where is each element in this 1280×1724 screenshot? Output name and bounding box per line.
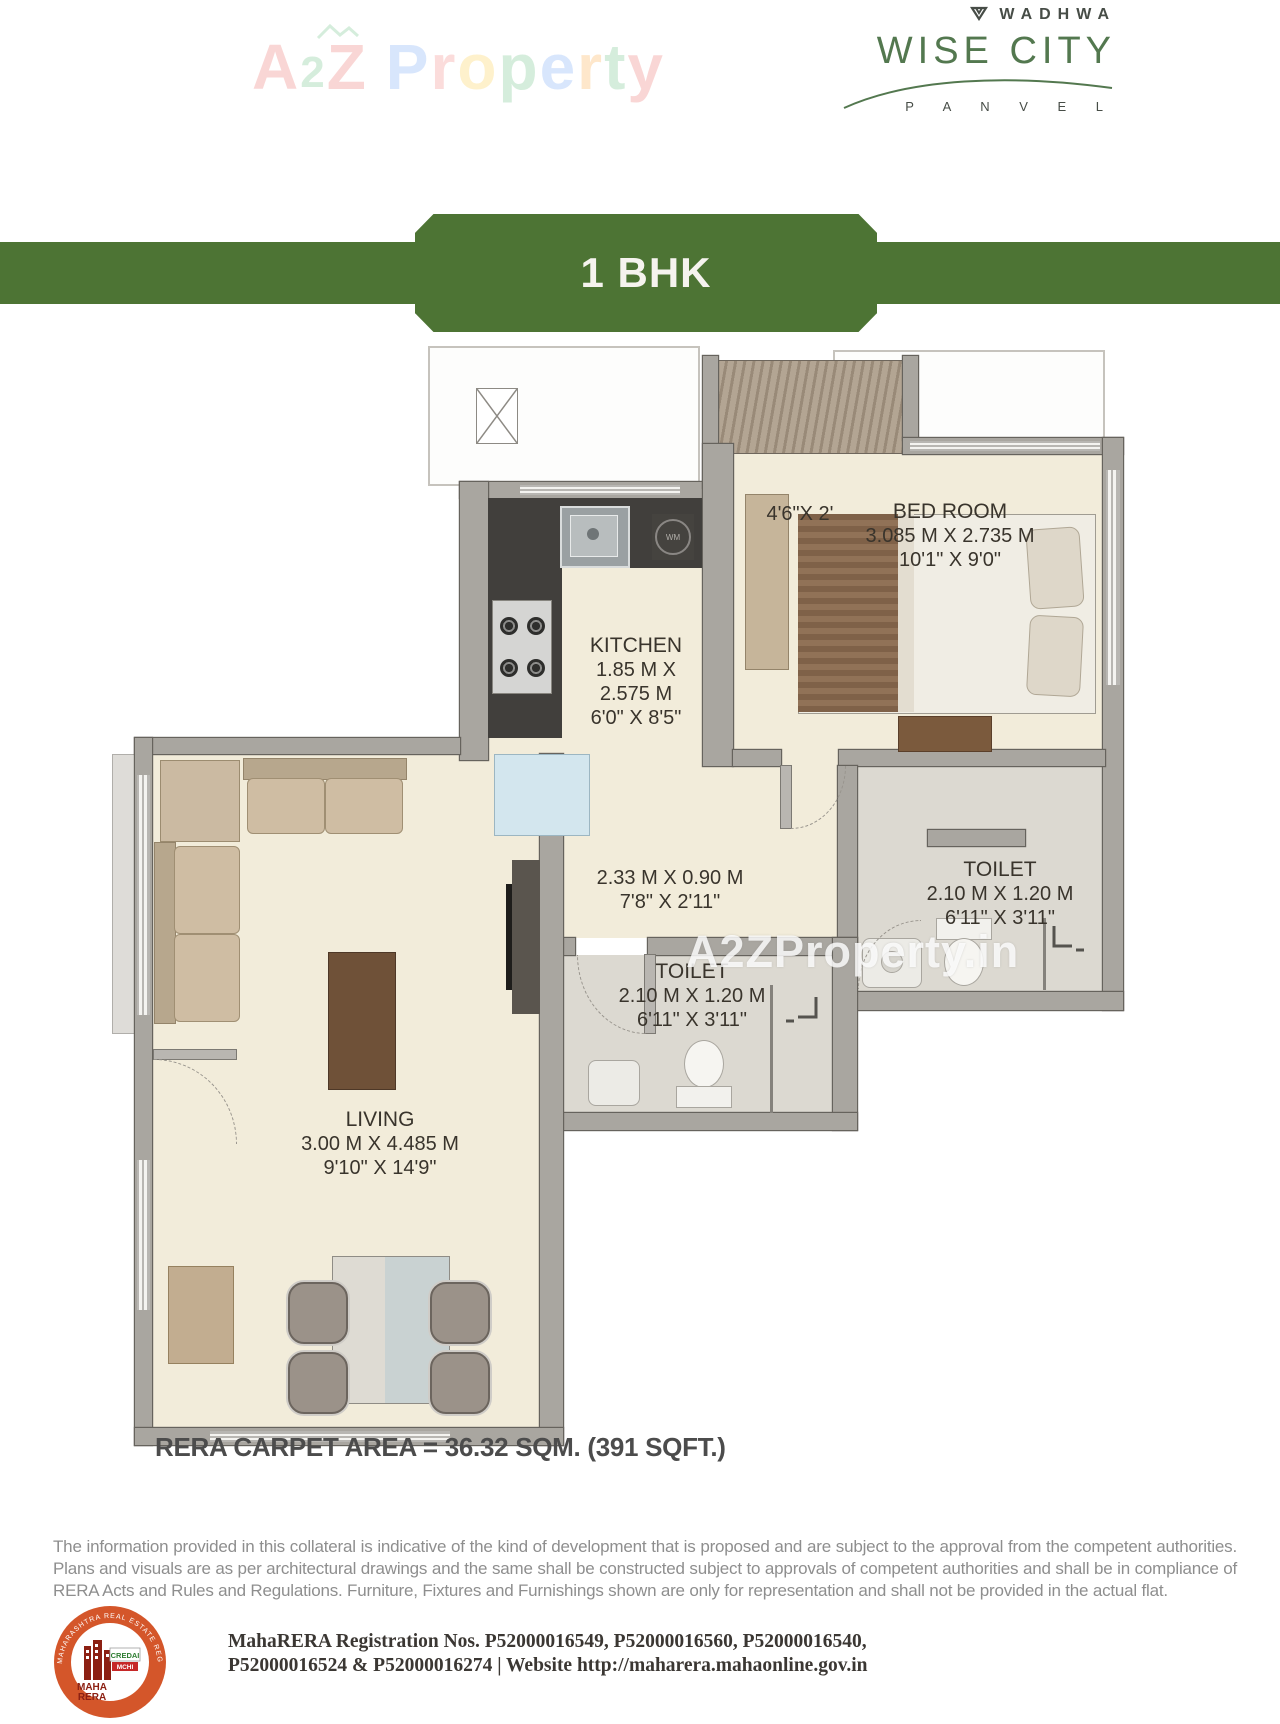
- pillow: [1026, 615, 1084, 698]
- shower-icon: [782, 995, 822, 1047]
- a2z-watermark: A2ZProperty.in: [686, 926, 1019, 978]
- washing-machine: WM: [652, 514, 694, 560]
- sofa-cushion: [174, 934, 240, 1022]
- toilet-wc-bowl: [684, 1040, 724, 1088]
- loveseat-cushion: [325, 778, 403, 834]
- room-name: KITCHEN: [590, 634, 682, 658]
- sofa-cushion: [174, 846, 240, 934]
- coffee-table: [328, 952, 396, 1090]
- deck-floor: [718, 360, 906, 454]
- flyer-page: { "colors": { "banner_green": "#4d7434",…: [0, 0, 1280, 1724]
- ledge-top-left: [428, 346, 700, 486]
- dresser: [898, 716, 992, 752]
- loveseat-cushion: [247, 778, 325, 834]
- room-dim-imperial: 6'0" X 8'5": [590, 706, 682, 730]
- room-dim-imperial: 10'1" X 9'0": [866, 548, 1035, 572]
- toilet-wc: [676, 1086, 732, 1108]
- room-dim-metric: 2.575 M: [590, 682, 682, 706]
- tv-screen: [506, 884, 512, 990]
- disclaimer-text: The information provided in this collate…: [53, 1536, 1237, 1602]
- kitchen-door-panel: [494, 754, 590, 836]
- deck-dim-label: 4'6"X 2': [766, 502, 833, 526]
- window: [137, 775, 150, 1015]
- wall: [839, 750, 1105, 766]
- dining-chair: [430, 1282, 490, 1344]
- loveseat-back: [243, 758, 407, 780]
- passage-label: 2.33 M X 0.90 M 7'8" X 2'11": [597, 866, 744, 914]
- room-dim-metric: 1.85 M X: [590, 658, 682, 682]
- room-name: BED ROOM: [866, 500, 1035, 524]
- washing-machine-drum: WM: [655, 519, 691, 555]
- window: [1106, 470, 1120, 685]
- kitchen-sink: [560, 506, 630, 568]
- wall: [857, 992, 1123, 1010]
- carpet-area-text: RERA CARPET AREA = 36.32 SQM. (391 SQFT.…: [155, 1432, 726, 1463]
- deck-dim: 4'6"X 2': [766, 502, 833, 526]
- shower-partition: [770, 985, 773, 1113]
- room-dim-metric: 2.10 M X 1.20 M: [619, 984, 766, 1008]
- hob: [492, 600, 552, 694]
- window: [520, 485, 680, 495]
- rera-registration-block: MahaRERA Registration Nos. P52000016549,…: [228, 1630, 868, 1678]
- kitchen-living-opening: [488, 738, 563, 754]
- dining-chair: [430, 1352, 490, 1414]
- toilet-attached-label: TOILET 2.10 M X 1.20 M 6'11" X 3'11": [927, 858, 1074, 930]
- room-dim-imperial: 6'11" X 3'11": [619, 1008, 766, 1032]
- kitchen-label: KITCHEN 1.85 M X 2.575 M 6'0" X 8'5": [590, 634, 682, 730]
- sink-basin: [570, 515, 618, 557]
- rera-registration-line2: P52000016524 & P52000016274 | Website ht…: [228, 1654, 868, 1678]
- wall: [928, 830, 1025, 846]
- sofa-back: [154, 842, 176, 1024]
- seal-rera-text: RERA: [78, 1692, 106, 1703]
- shower-icon: [1048, 924, 1088, 976]
- door-opening-patch: [781, 750, 839, 766]
- tv-unit: [512, 860, 540, 1014]
- room-dim-metric: 2.33 M X 0.90 M: [597, 866, 744, 890]
- wall: [733, 750, 781, 766]
- room-dim-metric: 3.00 M X 4.485 M: [301, 1132, 459, 1156]
- room-dim-metric: 2.10 M X 1.20 M: [927, 882, 1074, 906]
- duct-shaft: [476, 388, 518, 444]
- credai-text: CREDAI: [111, 1651, 140, 1660]
- burner-icon: [527, 659, 545, 677]
- wall: [540, 754, 563, 1445]
- wall: [903, 356, 918, 440]
- shaft-cross-icon: [477, 389, 517, 443]
- burner-icon: [500, 617, 518, 635]
- wall: [703, 444, 733, 766]
- mchi-text: MCHI: [117, 1664, 134, 1671]
- maharera-seal: MAHARASHTRA REAL ESTATE REGULATORY AUTHO…: [52, 1604, 168, 1720]
- wall: [460, 482, 488, 760]
- window: [910, 441, 1100, 451]
- room-name: LIVING: [301, 1108, 459, 1132]
- wall: [545, 1113, 857, 1130]
- sink-drain: [587, 528, 599, 540]
- door-leaf: [781, 766, 791, 828]
- burner-icon: [500, 659, 518, 677]
- living-label: LIVING 3.00 M X 4.485 M 9'10" X 14'9": [301, 1108, 459, 1180]
- corner-cabinet: [160, 760, 240, 842]
- door-leaf: [154, 1050, 236, 1059]
- room-name: TOILET: [927, 858, 1074, 882]
- window: [137, 1160, 150, 1310]
- wall: [135, 738, 460, 754]
- room-dim-imperial: 7'8" X 2'11": [597, 890, 744, 914]
- rera-registration-line1: MahaRERA Registration Nos. P52000016549,…: [228, 1630, 868, 1654]
- floor-plan: WM: [0, 0, 1280, 1724]
- washbasin: [588, 1060, 640, 1106]
- room-dim-imperial: 9'10" X 14'9": [301, 1156, 459, 1180]
- burner-icon: [527, 617, 545, 635]
- dining-chair: [288, 1282, 348, 1344]
- shoe-cabinet: [168, 1266, 234, 1364]
- bedroom-label: BED ROOM 3.085 M X 2.735 M 10'1" X 9'0": [866, 500, 1035, 572]
- dining-chair: [288, 1352, 348, 1414]
- room-dim-metric: 3.085 M X 2.735 M: [866, 524, 1035, 548]
